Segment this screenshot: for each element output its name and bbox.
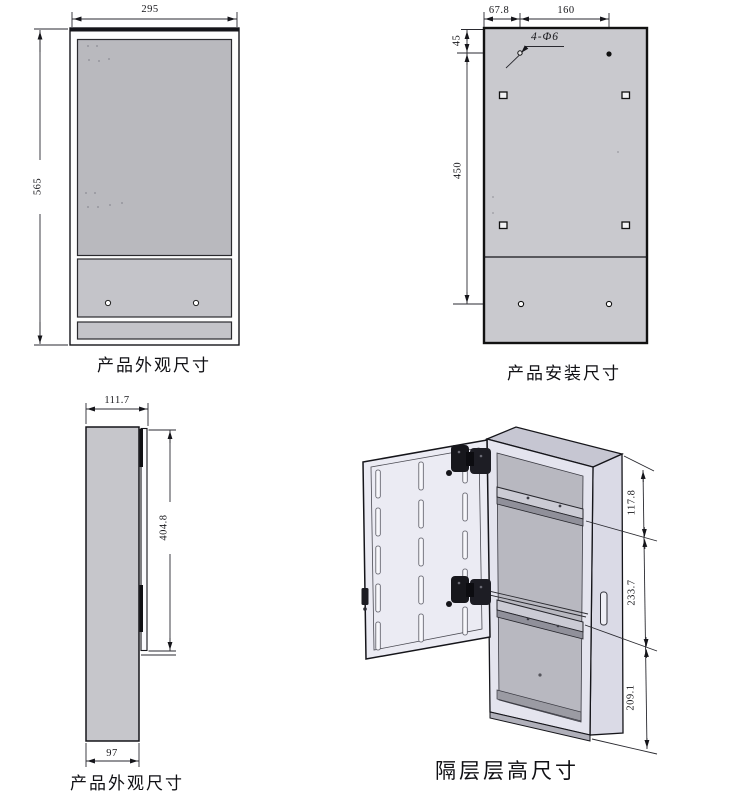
iso-view xyxy=(362,427,658,754)
mounting-view-caption: 产品安装尺寸 xyxy=(469,359,659,381)
front-screw-hole xyxy=(105,300,110,305)
iso-top-section-dim: 117.8 xyxy=(627,475,640,531)
mounting-hole-top-right xyxy=(606,51,611,56)
side-hinge-middle xyxy=(140,585,143,632)
iso-middle-section-dim: 233.7 xyxy=(627,565,640,621)
mounting-hole-bottom-right xyxy=(606,301,611,306)
side-door-height-dim: 404.8 xyxy=(159,500,172,556)
mounting-back-panel xyxy=(484,28,647,343)
mounting-view xyxy=(453,12,647,343)
side-cabinet-body xyxy=(86,427,139,741)
mounting-offset-x-dim: 67.8 xyxy=(471,5,527,18)
side-depth-total-dim: 111.7 xyxy=(89,395,145,408)
front-lower-panel xyxy=(78,259,232,317)
iso-view-caption: 隔层层高尺寸 xyxy=(392,758,622,784)
mounting-hole-bottom-left xyxy=(518,301,523,306)
iso-door-panel xyxy=(363,440,490,659)
mounting-hole-top-left xyxy=(518,51,522,55)
door-lock-knob xyxy=(363,607,367,611)
side-view-caption: 产品外观尺寸 xyxy=(32,769,222,791)
front-screw-hole xyxy=(193,300,198,305)
mounting-spacing-y-dim: 450 xyxy=(453,143,466,199)
side-body-depth-dim: 97 xyxy=(84,748,140,761)
front-door-panel xyxy=(78,40,232,256)
iso-side-vent-slot xyxy=(601,592,608,625)
front-bottom-strip xyxy=(78,322,232,339)
side-view xyxy=(86,403,176,767)
iso-bottom-section-dim: 209.1 xyxy=(626,670,639,726)
side-hinge-top xyxy=(140,429,143,467)
mounting-spacing-x-dim: 160 xyxy=(538,5,594,18)
drawing-canvas: .ln{stroke:#15151a;fill:none;} .ext{stro… xyxy=(0,0,740,805)
mounting-slot-hole xyxy=(622,222,630,229)
front-view xyxy=(34,12,239,345)
mounting-slot-hole xyxy=(500,222,508,229)
iso-back-hole xyxy=(538,673,541,676)
mounting-slot-hole xyxy=(500,92,508,99)
mounting-offset-y-dim: 45 xyxy=(452,13,465,69)
door-lock xyxy=(362,588,369,605)
hole-callout-label: 4-Φ6 xyxy=(517,31,573,45)
front-height-dim: 565 xyxy=(33,159,46,215)
mounting-slot-hole xyxy=(622,92,630,99)
front-view-caption: 产品外观尺寸 xyxy=(59,351,249,373)
front-width-dim: 295 xyxy=(122,4,178,17)
